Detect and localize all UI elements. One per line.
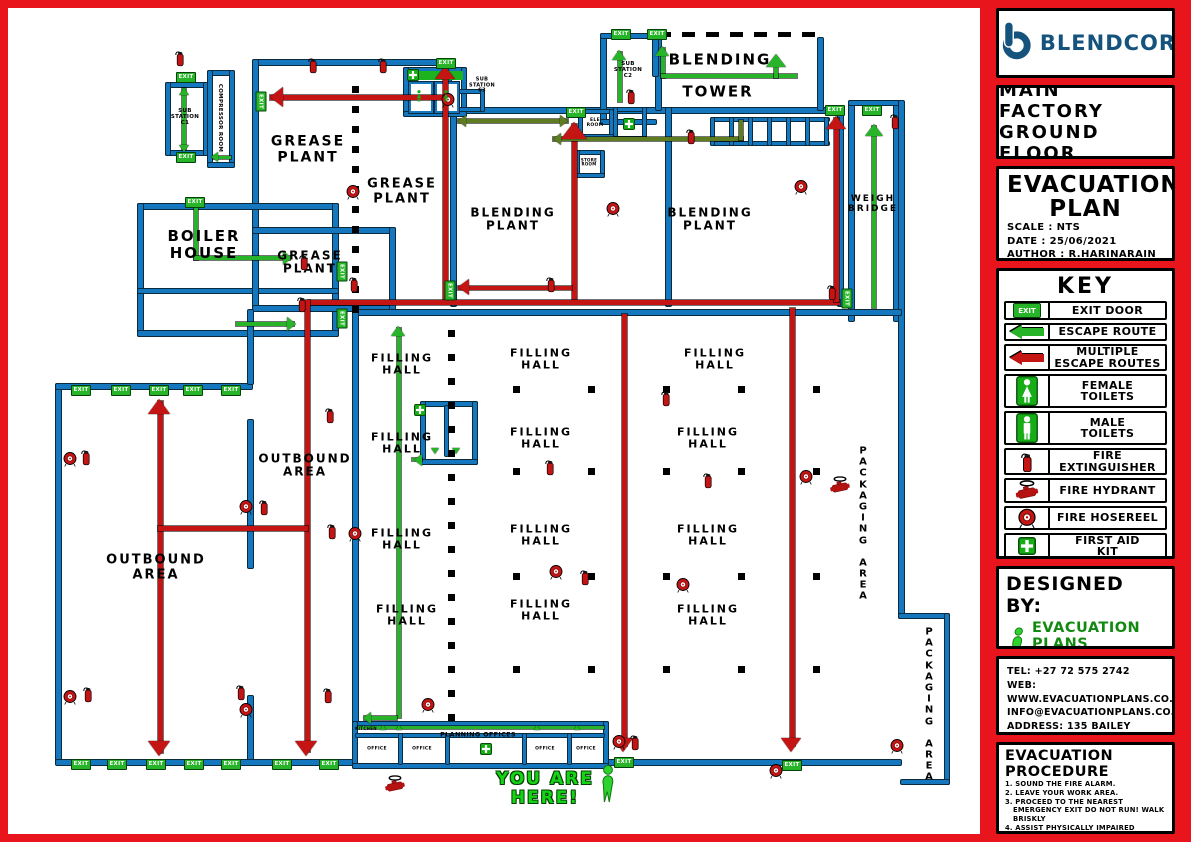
column-square <box>352 166 359 173</box>
wall <box>608 760 901 765</box>
key-row-fire-hydrant: FIRE HYDRANT <box>1004 478 1167 502</box>
exit-door-badge: EXIT <box>185 197 205 208</box>
column-square <box>448 474 455 481</box>
location-panel: MAIN FACTORY GROUND FLOOR <box>996 85 1175 159</box>
fire-hosereel-icon <box>799 470 814 485</box>
fire-hosereel-icon <box>421 698 436 713</box>
procedure-step: 4. ASSIST PHYSICALLY IMPAIRED INDIVIDUAL… <box>1005 824 1166 834</box>
room-label: FILLING HALL <box>371 528 433 553</box>
location-line2: GROUND FLOOR <box>999 122 1172 159</box>
exit-door-badge: EXIT <box>146 759 166 770</box>
exit-door-icon: EXIT <box>1006 303 1050 318</box>
room-label: PLANNING OFFICES <box>440 731 516 738</box>
wall <box>253 228 395 233</box>
column-square <box>448 402 455 409</box>
key-panel: KEY EXITEXIT DOORESCAPE ROUTEMULTIPLE ES… <box>996 268 1175 559</box>
fire-hosereel-icon <box>63 452 78 467</box>
female-toilets-icon <box>1006 376 1050 406</box>
fire-extinguisher-icon <box>323 686 334 703</box>
fire-extinguisher-icon <box>546 275 557 292</box>
column-square <box>352 266 359 273</box>
wall <box>138 204 338 209</box>
column-square <box>738 666 745 673</box>
key-label: FEMALE TOILETS <box>1050 376 1165 406</box>
route-arrowhead <box>363 712 371 724</box>
column-square <box>513 573 520 580</box>
escape-route-red <box>308 300 840 305</box>
wall <box>614 108 646 111</box>
exit-door-badge: EXIT <box>319 759 339 770</box>
evacuation-plans-logo: EVACUATION PLANS THINK SAFETY, ACT FORWA… <box>1006 620 1165 649</box>
fire-hydrant-icon <box>830 476 851 494</box>
key-row-escape-route: ESCAPE ROUTE <box>1004 323 1167 341</box>
exit-door-badge: EXIT <box>337 308 348 328</box>
blendcor-logo-icon <box>996 20 1035 66</box>
fire-extinguisher-icon <box>827 283 838 300</box>
wall <box>473 402 477 464</box>
route-arrowhead <box>458 279 469 295</box>
room-label: BLENDING PLANT <box>667 207 752 234</box>
escape-route-green <box>358 726 604 729</box>
column-square <box>663 573 670 580</box>
wall <box>353 310 358 728</box>
wall <box>451 108 456 306</box>
column-square <box>352 226 359 233</box>
column-square <box>352 126 359 133</box>
wall <box>576 174 604 177</box>
key-row-first-aid-kit: FIRST AID KIT <box>1004 533 1167 559</box>
plan-title: EVACUATION PLAN <box>1007 173 1164 221</box>
room-label: OUTBOUND AREA <box>258 453 351 480</box>
wall <box>568 734 571 764</box>
toilet-figure-icon <box>415 90 423 103</box>
room-label: BOILER HOUSE <box>167 228 240 262</box>
male-toilets-icon <box>1006 413 1050 443</box>
fire-extinguisher-icon <box>686 127 697 144</box>
column-square <box>352 146 359 153</box>
first-aid-kit-icon <box>414 404 426 416</box>
exit-door-badge: EXIT <box>184 759 204 770</box>
exit-door-badge: EXIT <box>436 58 456 69</box>
plan-date: DATE : 25/06/2021 <box>1007 235 1164 249</box>
procedure-title: EVACUATION PROCEDURE <box>1005 748 1166 780</box>
column-square <box>448 666 455 673</box>
wall <box>208 163 234 167</box>
key-label: MULTIPLE ESCAPE ROUTES <box>1050 346 1165 369</box>
room-label: YOU ARE HERE! <box>496 770 594 808</box>
exit-door-badge: EXIT <box>611 29 631 40</box>
wall <box>818 38 823 110</box>
column-square <box>448 618 455 625</box>
exit-door-badge: EXIT <box>782 760 802 771</box>
key-title: KEY <box>1004 274 1167 299</box>
column-square <box>448 378 455 385</box>
room-label: FILLING HALL <box>684 348 746 373</box>
route-arrowhead <box>179 145 189 152</box>
escape-route-red <box>622 314 627 746</box>
room-label: FILLING HALL <box>510 427 572 452</box>
wall <box>806 118 809 145</box>
fire-extinguisher-icon <box>83 685 94 702</box>
fire-hosereel-icon <box>348 527 363 542</box>
key-label: FIRE HOSEREEL <box>1050 508 1165 528</box>
column-square <box>588 468 595 475</box>
room-label: FILLING HALL <box>677 524 739 549</box>
column-square <box>813 386 820 393</box>
room-label: OFFICE <box>576 746 596 751</box>
fire-extinguisher-icon <box>236 683 247 700</box>
contact-panel: TEL: +27 72 575 2742WEB: WWW.EVACUATIONP… <box>996 656 1175 735</box>
wall <box>945 614 949 784</box>
wall <box>643 108 646 140</box>
fire-hosereel-icon <box>346 185 361 200</box>
wall <box>253 228 258 310</box>
room-label: OFFICE <box>412 746 432 751</box>
wall <box>614 108 617 140</box>
column-square <box>352 206 359 213</box>
fire-hydrant-icon <box>385 775 406 793</box>
column-square <box>448 522 455 529</box>
key-label: MALE TOILETS <box>1050 413 1165 443</box>
exit-door-badge: EXIT <box>149 385 169 396</box>
wall <box>899 101 904 618</box>
column-square <box>448 450 455 457</box>
fire-hydrant-icon <box>1006 480 1050 500</box>
column-square <box>448 570 455 577</box>
key-row-fire-hosereel: FIRE HOSEREEL <box>1004 506 1167 530</box>
fire-extinguisher-icon <box>81 448 92 465</box>
key-label: FIRE HYDRANT <box>1050 480 1165 500</box>
wall <box>390 228 395 310</box>
exit-door-badge: EXIT <box>71 759 91 770</box>
you-are-here-person-icon <box>599 763 617 804</box>
column-square <box>448 546 455 553</box>
fire-hosereel-icon <box>890 739 905 754</box>
exit-door-badge: EXIT <box>183 385 203 396</box>
exit-door-badge: EXIT <box>337 261 348 281</box>
key-label: FIRST AID KIT <box>1050 535 1165 558</box>
wall <box>56 384 61 764</box>
wall <box>523 734 526 764</box>
wall <box>576 151 604 154</box>
contact-line: INFO@EVACUATIONPLANS.CO.ZA <box>1007 706 1164 720</box>
wall <box>610 110 613 138</box>
wall <box>353 764 608 768</box>
escape-route-icon <box>1006 325 1050 339</box>
exit-door-badge: EXIT <box>842 288 853 308</box>
key-rows: EXITEXIT DOORESCAPE ROUTEMULTIPLE ESCAPE… <box>1004 301 1167 559</box>
escape-route-olive <box>739 120 743 140</box>
sidebar: BLENDCOR MAIN FACTORY GROUND FLOOR EVACU… <box>988 8 1183 834</box>
room-label: TOWER <box>682 84 753 101</box>
escape-route-olive <box>458 119 568 123</box>
room-label: GREASE PLANT <box>271 134 345 165</box>
wall <box>399 734 402 764</box>
room-label: SUB STATION C1 <box>171 108 199 126</box>
first-aid-kit-icon <box>407 69 419 81</box>
route-arrowhead <box>781 738 801 752</box>
wall <box>749 118 752 145</box>
room-label: STORE ROOM <box>581 159 597 168</box>
fire-extinguisher-icon <box>325 406 336 423</box>
key-label: EXIT DOOR <box>1050 303 1165 318</box>
column-square <box>513 468 520 475</box>
route-arrowhead <box>553 133 561 145</box>
designed-by-title: DESIGNED BY: <box>1006 573 1165 617</box>
fire-extinguisher-icon <box>626 87 637 104</box>
fire-extinguisher-icon <box>378 56 389 73</box>
fire-hosereel-icon <box>676 578 691 593</box>
route-arrowhead <box>865 124 883 136</box>
wall <box>421 460 477 464</box>
room-label: KITCHEN <box>355 727 377 731</box>
route-arrowhead <box>574 725 580 730</box>
fire-extinguisher-icon <box>890 112 901 129</box>
room-label: P A C K A G I N G A R E A <box>859 446 867 603</box>
exit-door-badge: EXIT <box>111 385 131 396</box>
room-label: FILLING HALL <box>510 599 572 624</box>
escape-route-red <box>834 118 839 302</box>
first-aid-kit-icon <box>623 118 635 130</box>
fire-hosereel-icon <box>794 180 809 195</box>
column-square <box>813 468 820 475</box>
column-square <box>448 690 455 697</box>
column-square <box>513 386 520 393</box>
procedure-panel: EVACUATION PROCEDURE 1. SOUND THE FIRE A… <box>996 742 1175 834</box>
fire-extinguisher-icon <box>259 498 270 515</box>
fire-hosereel-icon <box>239 500 254 515</box>
room-label: GREASE PLANT <box>277 250 342 277</box>
route-arrowhead <box>826 116 846 129</box>
column-square <box>588 386 595 393</box>
room-label: FILLING HALL <box>510 524 572 549</box>
exit-door-badge: EXIT <box>256 91 267 111</box>
floor-plan: SUB STATION C1COMPRESSOR ROOMGREASE PLAN… <box>8 8 980 834</box>
exit-door-badge: EXIT <box>221 759 241 770</box>
room-label: FILLING HALL <box>376 604 438 629</box>
exit-door-badge: EXIT <box>566 107 586 118</box>
designed-by-panel: DESIGNED BY: EVACUATION PLANS THINK SAFE… <box>996 566 1175 649</box>
fire-hosereel-icon <box>239 703 254 718</box>
room-label: FILLING HALL <box>677 604 739 629</box>
contact-line: ADDRESS: 135 BAILEY ROAD, <box>1007 720 1164 735</box>
escape-route-red <box>572 124 577 304</box>
column-square <box>738 468 745 475</box>
wall <box>230 71 234 167</box>
room-label: OUTBOUND AREA <box>106 553 206 582</box>
fire-extinguisher-icon <box>299 253 310 270</box>
column-square <box>738 386 745 393</box>
escape-route-green <box>872 126 876 308</box>
column-square <box>448 330 455 337</box>
route-arrowhead <box>270 87 283 107</box>
fire-extinguisher-icon <box>630 733 641 750</box>
room-label: FILLING HALL <box>510 348 572 373</box>
wall <box>768 118 771 145</box>
room-label: SUB STATION C2 <box>614 61 642 79</box>
column-square <box>448 498 455 505</box>
fire-hosereel-icon <box>63 690 78 705</box>
column-square <box>588 666 595 673</box>
key-row-fire-extinguisher: FIRE EXTINGUISHER <box>1004 448 1167 475</box>
procedure-step: 1. SOUND THE FIRE ALARM. <box>1005 780 1166 789</box>
exit-door-badge: EXIT <box>272 759 292 770</box>
running-man-icon <box>1006 627 1028 650</box>
exit-door-badge: EXIT <box>176 72 196 83</box>
room-label: P A C K A G I N G A R E A <box>925 627 933 784</box>
fire-extinguisher-icon <box>349 275 360 292</box>
brand-panel: BLENDCOR <box>996 8 1175 78</box>
first-aid-kit-icon <box>480 743 492 755</box>
fire-extinguisher-icon <box>297 295 308 312</box>
exit-door-badge: EXIT <box>71 385 91 396</box>
exit-door-badge: EXIT <box>647 29 667 40</box>
room-label: ELE ROOM <box>587 118 604 128</box>
wall <box>166 83 170 155</box>
key-row-female-toilets: FEMALE TOILETS <box>1004 374 1167 408</box>
route-arrowhead <box>179 88 189 95</box>
fire-extinguisher-icon <box>308 56 319 73</box>
contact-line: WEB: WWW.EVACUATIONPLANS.CO.ZA <box>1007 679 1164 707</box>
contact-line: TEL: +27 72 575 2742 <box>1007 665 1164 679</box>
plan-author: AUTHOR : R.HARINARAIN <box>1007 248 1164 261</box>
brand-name: BLENDCOR <box>1040 31 1175 55</box>
dashed-wall <box>658 32 820 37</box>
column-square <box>663 666 670 673</box>
first-aid-kit-icon <box>1006 535 1050 558</box>
fire-extinguisher-icon <box>327 522 338 539</box>
escape-route-red <box>158 526 308 531</box>
route-arrowhead <box>534 725 540 730</box>
procedure-step: 3. PROCEED TO THE NEAREST EMERGENCY EXIT… <box>1005 798 1166 824</box>
escape-route-red <box>790 308 795 746</box>
column-square <box>352 106 359 113</box>
fire-extinguisher-icon <box>545 458 556 475</box>
wall <box>166 83 208 87</box>
wall <box>604 722 608 768</box>
procedure-step: 2. LEAVE YOUR WORK AREA. <box>1005 789 1166 798</box>
wall <box>253 60 451 65</box>
column-square <box>513 666 520 673</box>
route-arrowhead <box>458 115 466 127</box>
column-square <box>738 573 745 580</box>
room-label: BLENDING PLANT <box>470 207 555 234</box>
escape-route-green <box>236 322 294 326</box>
room-label: WEIGH BRIDGE <box>848 194 898 214</box>
exit-door-badge: EXIT <box>862 105 882 116</box>
escape-route-green <box>397 328 401 718</box>
exit-door-badge: EXIT <box>445 280 456 300</box>
room-label: COMPRESSOR ROOM <box>217 84 223 152</box>
column-square <box>813 666 820 673</box>
room-label: BLENDING <box>669 52 772 69</box>
room-label: GREASE PLANT <box>367 177 437 206</box>
exit-door-badge: EXIT <box>825 105 845 116</box>
column-square <box>448 354 455 361</box>
route-arrowhead <box>295 741 317 756</box>
fire-extinguisher-icon <box>661 389 672 406</box>
room-label: FILLING HALL <box>677 427 739 452</box>
key-row-exit-door: EXITEXIT DOOR <box>1004 301 1167 320</box>
wall <box>353 310 901 315</box>
fire-extinguisher-icon <box>175 49 186 66</box>
column-square <box>352 306 359 313</box>
wall <box>899 614 949 618</box>
plan-scale: SCALE : NTS <box>1007 221 1164 235</box>
fire-hosereel-icon <box>606 202 621 217</box>
room-label: OFFICE <box>535 746 555 751</box>
route-arrowhead <box>396 725 402 730</box>
room-label: OFFICE <box>367 746 387 751</box>
key-label: FIRE EXTINGUISHER <box>1050 450 1165 473</box>
wall <box>138 289 338 293</box>
fire-extinguisher-icon <box>580 568 591 585</box>
exit-door-badge: EXIT <box>221 385 241 396</box>
column-square <box>448 426 455 433</box>
procedure-steps: 1. SOUND THE FIRE ALARM.2. LEAVE YOUR WO… <box>1005 780 1166 834</box>
plan-title-panel: EVACUATION PLAN SCALE : NTS DATE : 25/06… <box>996 166 1175 261</box>
route-arrowhead <box>287 317 296 331</box>
key-label: ESCAPE ROUTE <box>1050 325 1165 339</box>
route-arrowhead <box>148 399 170 414</box>
column-square <box>352 246 359 253</box>
route-arrowhead <box>612 50 626 60</box>
room-label: FILLING HALL <box>371 432 433 457</box>
wall <box>56 760 356 765</box>
route-arrowhead <box>380 725 386 730</box>
column-square <box>813 573 820 580</box>
wall <box>787 118 790 145</box>
wall <box>248 420 253 568</box>
room-label: FILLING HALL <box>371 353 433 378</box>
wall <box>138 204 143 336</box>
location-line1: MAIN FACTORY <box>999 85 1172 122</box>
wall <box>451 108 843 113</box>
evacuation-plans-logo-text: EVACUATION PLANS <box>1032 620 1165 649</box>
room-label: SUB STATION C3 <box>469 78 495 95</box>
evacuation-plan-page: SUB STATION C1COMPRESSOR ROOMGREASE PLAN… <box>0 0 1191 842</box>
route-arrowhead <box>211 152 218 162</box>
fire-extinguisher-icon <box>1006 450 1050 473</box>
exit-door-badge: EXIT <box>614 757 634 768</box>
column-square <box>448 714 455 721</box>
route-arrowhead <box>391 326 405 336</box>
fire-hosereel-icon <box>612 735 627 750</box>
key-row-male-toilets: MALE TOILETS <box>1004 411 1167 445</box>
fire-extinguisher-icon <box>703 471 714 488</box>
multiple-escape-routes-icon <box>1006 346 1050 369</box>
key-row-multiple-escape-routes: MULTIPLE ESCAPE ROUTES <box>1004 344 1167 371</box>
column-square <box>448 594 455 601</box>
column-square <box>448 642 455 649</box>
route-arrowhead <box>148 741 170 756</box>
exit-door-badge: EXIT <box>176 152 196 163</box>
column-square <box>352 86 359 93</box>
column-square <box>663 468 670 475</box>
toilet-figure-icon <box>442 90 450 103</box>
route-arrowhead <box>655 46 669 56</box>
fire-hosereel-icon <box>549 565 564 580</box>
exit-door-badge: EXIT <box>107 759 127 770</box>
fire-hosereel-icon <box>1006 508 1050 528</box>
